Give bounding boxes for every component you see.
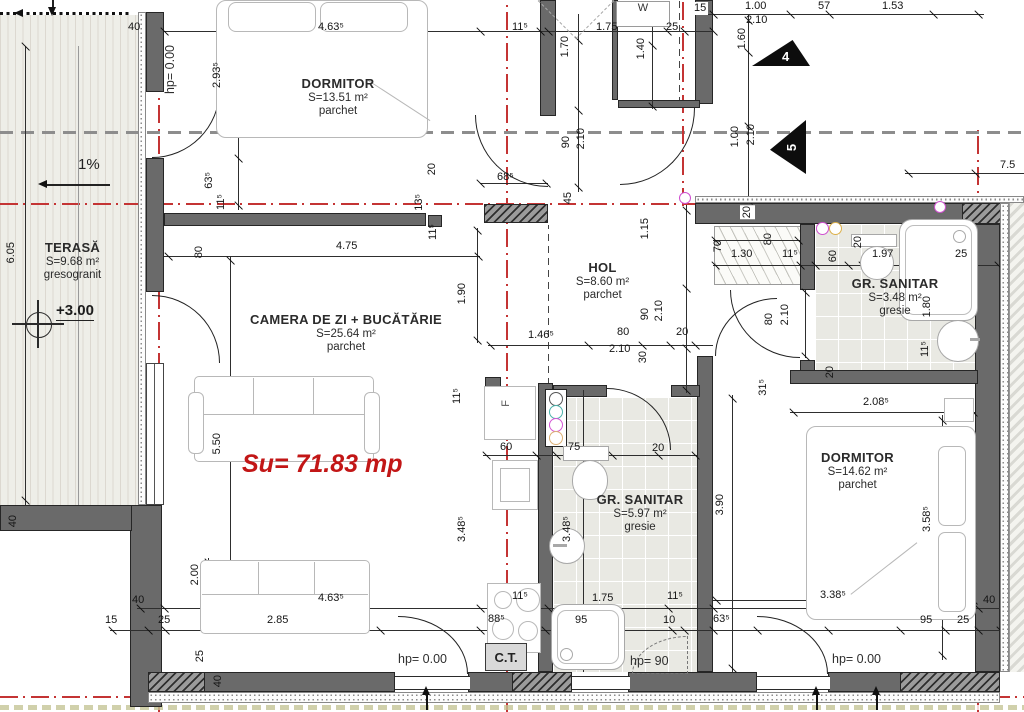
dim-label: 31⁵ xyxy=(758,379,769,396)
section-marker-5: 5 xyxy=(770,120,806,174)
burner xyxy=(518,621,538,641)
dim-label: 2.00 xyxy=(190,564,201,585)
wall-segment xyxy=(618,100,700,108)
dim-label: 20 xyxy=(652,443,664,454)
boiler-box: C.T. xyxy=(485,643,527,671)
daybed-line xyxy=(258,562,259,594)
dim-label: 4.63⁵ xyxy=(318,593,344,604)
dimension-line xyxy=(164,256,480,257)
bathtub-drain xyxy=(560,648,573,661)
entry-arrow-head xyxy=(872,686,880,695)
bathtub-drain xyxy=(953,230,966,243)
dim-label: 60 xyxy=(500,442,512,453)
wall-segment xyxy=(697,356,713,672)
helper-dash-v-1 xyxy=(548,225,549,385)
wall-segment xyxy=(800,224,815,290)
plumbing-dot xyxy=(829,222,842,235)
wall-segment xyxy=(164,213,426,226)
window-left xyxy=(146,363,164,505)
nightstand xyxy=(944,398,974,422)
entry-arrow-line xyxy=(876,694,878,710)
dim-label: 2.10 xyxy=(609,344,630,355)
level-annotation: +3.00 xyxy=(56,302,94,321)
dim-label: 1.53 xyxy=(882,1,903,12)
door-arc-bottom-right xyxy=(757,616,828,674)
dim-label: 40 xyxy=(8,515,19,527)
dim-label: 2.93⁵ xyxy=(212,62,223,88)
dim-label: 1.97 xyxy=(872,249,893,260)
door-arc-terrace-bedroom xyxy=(152,90,220,158)
room-name: HOL xyxy=(560,260,645,275)
insulation-right xyxy=(1000,203,1009,672)
door-arc-terrace-living xyxy=(152,295,220,363)
level-symbol xyxy=(26,312,52,338)
dim-label: 30 xyxy=(638,351,649,363)
room-area: S=14.62 m² xyxy=(790,466,925,478)
pillow xyxy=(938,446,966,526)
sofa-line xyxy=(253,378,254,414)
sofa-line xyxy=(313,378,314,414)
dim-label: 3.90 xyxy=(715,494,726,515)
room-area: S=9.68 m² xyxy=(15,256,130,268)
wall-segment xyxy=(900,672,1000,692)
dim-label: 20 xyxy=(853,236,864,248)
plumbing-dot xyxy=(816,222,829,235)
dim-label: 15 xyxy=(692,2,708,15)
dim-label: 63⁵ xyxy=(713,614,730,625)
dim-label: 25 xyxy=(666,22,678,33)
room-area: S=5.97 m² xyxy=(585,508,695,520)
room-name: GR. SANITAR xyxy=(585,492,695,507)
boiler-label: C.T. xyxy=(494,650,517,665)
entry-arrow-line xyxy=(816,694,818,710)
dim-label: 1.80 xyxy=(922,296,933,317)
dimension-line xyxy=(697,14,984,15)
dim-label: 1.60 xyxy=(737,28,748,49)
entry-arrow-line xyxy=(426,694,428,710)
dim-label: 20 xyxy=(825,366,836,378)
dim-label: 95 xyxy=(575,615,587,626)
riser-dot xyxy=(549,418,563,432)
room-label-hol: HOL S=8.60 m² parchet xyxy=(560,260,645,301)
washbasin-tap xyxy=(970,338,980,341)
dim-label: 75 xyxy=(568,442,580,453)
door-arc-entrance xyxy=(620,108,695,185)
room-finish: parchet xyxy=(235,341,457,353)
room-finish: gresie xyxy=(835,305,955,317)
wall-segment xyxy=(146,12,164,92)
room-name: DORMITOR xyxy=(790,450,925,465)
dim-label: 11⁵ xyxy=(920,341,931,357)
dim-label: 40 xyxy=(213,675,224,687)
dim-label: 45 xyxy=(563,192,574,204)
dim-label: 11⁵ xyxy=(512,591,528,602)
wall-segment xyxy=(484,204,548,223)
insulation-left xyxy=(138,12,146,505)
room-name: GR. SANITAR xyxy=(835,276,955,291)
dim-label: 20 xyxy=(427,163,438,175)
slope-annotation: 1% xyxy=(78,156,100,173)
dim-label: 2.10 xyxy=(780,304,791,325)
room-finish: parchet xyxy=(560,289,645,301)
dim-label: 2.08⁵ xyxy=(863,397,889,408)
service-symbol xyxy=(679,192,691,204)
dimension-line xyxy=(805,290,806,358)
dim-label: 1.00 xyxy=(730,126,741,147)
dimension-line xyxy=(477,228,478,343)
dimension-line xyxy=(713,240,800,241)
dim-label: 80 xyxy=(763,233,774,245)
dim-label: 1.00 xyxy=(745,1,766,12)
fridge-label: F xyxy=(500,400,512,407)
dim-label: 11⁵ xyxy=(452,388,463,404)
room-finish: gresogranit xyxy=(15,269,130,281)
dimension-line xyxy=(686,205,687,393)
room-finish: gresie xyxy=(585,521,695,533)
dimension-line xyxy=(488,345,713,346)
dimension-line xyxy=(652,14,653,109)
dim-label: 4.75 xyxy=(336,241,357,252)
dim-label: 1.15 xyxy=(640,218,651,239)
dim-label: 11⁵ xyxy=(216,194,227,210)
sofa-armrest xyxy=(364,392,380,454)
dim-label: 20 xyxy=(740,205,755,219)
sofa-line xyxy=(196,414,372,415)
entry-arrow-head xyxy=(812,686,820,695)
riser-dot xyxy=(549,392,563,406)
service-symbol xyxy=(934,201,946,213)
insulation-top-right xyxy=(695,196,1024,203)
room-name: CAMERA DE ZI + BUCĂTĂRIE xyxy=(235,312,457,327)
dim-label: 6.05 xyxy=(6,242,17,263)
dim-label: 1.75 xyxy=(592,593,613,604)
dim-label: 90 xyxy=(640,308,651,320)
washer-label: W xyxy=(638,2,648,14)
boundary-arrow-head xyxy=(48,7,56,16)
pillow xyxy=(228,2,316,32)
dim-label: 3.48⁵ xyxy=(562,516,573,542)
room-area: S=13.51 m² xyxy=(253,92,423,104)
dim-label: 2.85 xyxy=(267,615,288,626)
wall-segment xyxy=(0,505,132,531)
room-area: S=25.64 m² xyxy=(235,328,457,340)
dim-label: 68⁵ xyxy=(497,172,514,183)
dim-label: 20 xyxy=(676,327,688,338)
dim-label: 25 xyxy=(158,615,170,626)
dim-label: 80 xyxy=(617,327,629,338)
dim-label: 1.90 xyxy=(457,283,468,304)
burner xyxy=(494,591,512,609)
floor-plan: W TERASĂ S=9.68 m² gresogranit +3.00 1% … xyxy=(0,0,1024,712)
dim-label: 40 xyxy=(132,595,144,606)
dim-label: 2.10 xyxy=(576,128,587,149)
room-area: S=8.60 m² xyxy=(560,276,645,288)
dim-label: 10 xyxy=(663,615,675,626)
dim-label: 4.63⁵ xyxy=(318,22,344,33)
sofa-armrest xyxy=(188,392,204,454)
room-label-gr-sanitar-mare: GR. SANITAR S=5.97 m² gresie xyxy=(585,492,695,533)
dim-label: 1.70 xyxy=(560,36,571,57)
dim-label: 5.50 xyxy=(212,433,223,454)
dim-label: 95 xyxy=(920,615,932,626)
riser-dot xyxy=(549,405,563,419)
room-finish: parchet xyxy=(253,105,423,117)
wall-segment xyxy=(790,370,978,384)
hp-annotation-bottom-mid: hp= 90 xyxy=(630,654,669,668)
dim-label: 11⁵ xyxy=(782,249,798,260)
dim-label: 80 xyxy=(194,246,205,258)
washbasin-tap xyxy=(553,544,567,547)
dim-label: 1.46⁵ xyxy=(528,330,554,341)
dim-label: 57 xyxy=(818,1,830,12)
wall-segment xyxy=(148,672,205,692)
dim-label: 90 xyxy=(561,136,572,148)
dim-label: 70 xyxy=(713,240,724,252)
dim-label: 88⁵ xyxy=(488,614,505,625)
dim-label: 3.58⁵ xyxy=(922,506,933,532)
wall-segment xyxy=(695,0,713,104)
slope-arrow-head xyxy=(38,180,47,188)
hp-annotation-bottom-left: hp= 0.00 xyxy=(398,652,447,666)
dim-label: 2.10 xyxy=(654,300,665,321)
dim-label: 40 xyxy=(983,595,995,606)
pillow xyxy=(938,532,966,612)
room-area: S=3.48 m² xyxy=(835,292,955,304)
room-label-dormitor-top: DORMITOR S=13.51 m² parchet xyxy=(253,76,423,117)
dim-label: 11⁵ xyxy=(667,591,683,602)
dim-label: 40 xyxy=(128,22,140,33)
dim-label: 11⁵ xyxy=(428,224,439,240)
hp-annotation-left: hp= 0.00 xyxy=(163,45,177,94)
dim-label: 25 xyxy=(957,615,969,626)
dim-label: 80 xyxy=(764,313,775,325)
section-marker-5-label: 5 xyxy=(784,144,799,151)
room-label-terasa: TERASĂ S=9.68 m² gresogranit xyxy=(15,240,130,281)
room-label-gr-sanitar-mic: GR. SANITAR S=3.48 m² gresie xyxy=(835,276,955,317)
oven xyxy=(500,468,530,502)
dim-label: 2.10 xyxy=(746,15,767,26)
washbasin xyxy=(937,320,979,362)
dim-label: 11⁵ xyxy=(512,22,528,33)
daybed-line xyxy=(314,562,315,594)
dim-label: 25 xyxy=(955,249,967,260)
washer-box: W xyxy=(616,1,670,27)
dimension-line xyxy=(905,173,1024,174)
hp-annotation-bottom-right: hp= 0.00 xyxy=(832,652,881,666)
dim-label: 63⁵ xyxy=(204,172,215,189)
dim-label: 3.38⁵ xyxy=(820,590,846,601)
riser-dot xyxy=(549,431,563,445)
wall-segment xyxy=(628,672,757,692)
total-usable-area: Su= 71.83 mp xyxy=(242,450,403,479)
room-label-camera-de-zi: CAMERA DE ZI + BUCĂTĂRIE S=25.64 m² parc… xyxy=(235,312,457,353)
dim-label: 1.75 xyxy=(596,22,617,33)
slope-arrow-line xyxy=(46,184,110,186)
wall-segment xyxy=(146,158,164,292)
dim-label: 1.40 xyxy=(636,38,647,59)
level-symbol-line-v xyxy=(37,300,39,348)
dim-label: 60 xyxy=(828,250,839,262)
entry-arrow-head xyxy=(422,686,430,695)
party-wall-right xyxy=(1009,203,1024,672)
fridge xyxy=(484,386,536,440)
dim-label: 25 xyxy=(195,650,206,662)
dim-label: 15 xyxy=(105,615,117,626)
room-name: TERASĂ xyxy=(15,240,130,255)
dim-label: 2.10 xyxy=(746,124,757,145)
room-name: DORMITOR xyxy=(253,76,423,91)
boundary-arrow-head xyxy=(14,9,23,17)
section-marker-4: 4 xyxy=(752,40,810,66)
dim-label: 7.5 xyxy=(1000,160,1015,171)
dimension-line xyxy=(748,14,749,204)
room-finish: parchet xyxy=(790,479,925,491)
helper-dash-v-2 xyxy=(679,0,680,104)
dim-label: 13⁵ xyxy=(414,194,425,211)
door-arc-bedroom-right xyxy=(715,298,777,356)
window-sill-bottom-mid xyxy=(572,676,630,690)
room-label-dormitor-dreapta: DORMITOR S=14.62 m² parchet xyxy=(790,450,925,491)
wall-segment xyxy=(512,672,572,692)
dim-label: 3.48⁵ xyxy=(457,516,468,542)
dim-label: 1.30 xyxy=(731,249,752,260)
section-marker-4-label: 4 xyxy=(782,49,789,64)
door-sill-bottom-left xyxy=(395,676,470,690)
